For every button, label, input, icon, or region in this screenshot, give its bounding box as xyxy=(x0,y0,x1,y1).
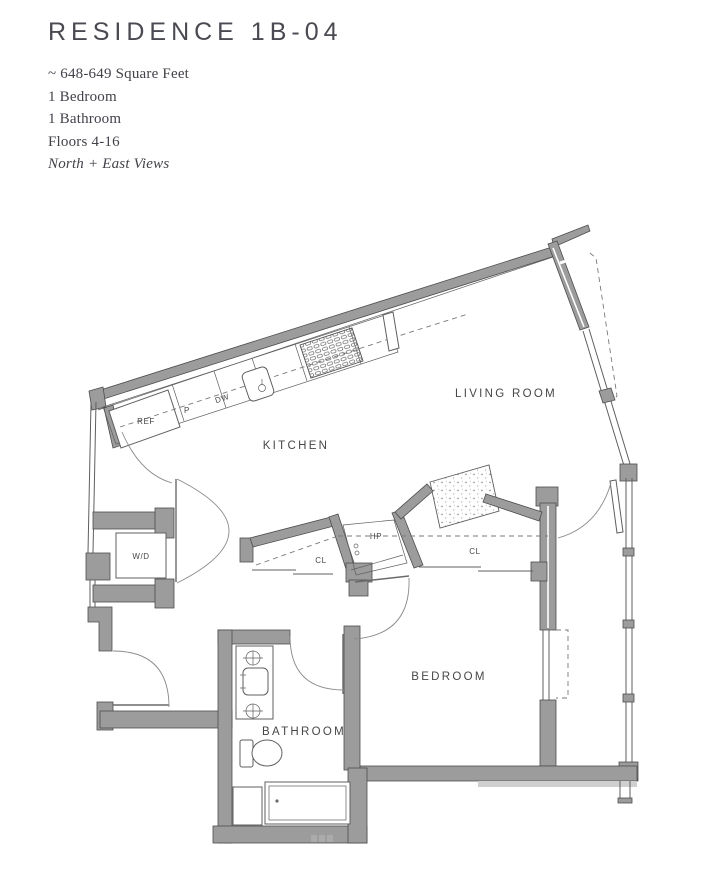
heat-pump-label: HP xyxy=(370,532,382,541)
bathroom-label: BATHROOM xyxy=(262,726,346,738)
bathtub xyxy=(233,782,350,825)
closet-left-label: CL xyxy=(315,556,326,565)
floor-plan: KITCHEN LIVING ROOM BEDROOM BATHROOM W/D… xyxy=(0,0,720,885)
closet-tracks xyxy=(252,253,617,698)
pantry-label: P xyxy=(184,406,190,415)
dishwasher-label: DW xyxy=(214,392,231,405)
washer-dryer-label: W/D xyxy=(132,552,149,561)
walls xyxy=(86,225,638,843)
toilet xyxy=(240,740,282,767)
living-room-label: LIVING ROOM xyxy=(455,388,557,400)
bedroom-label: BEDROOM xyxy=(411,671,487,683)
kitchen-label: KITCHEN xyxy=(263,440,330,452)
bathroom-vanity xyxy=(236,646,273,719)
refrigerator-label: REF xyxy=(137,417,155,426)
page: RESIDENCE 1B-04 ~ 648-649 Square Feet 1 … xyxy=(0,0,720,885)
closet-right-label: CL xyxy=(469,547,480,556)
